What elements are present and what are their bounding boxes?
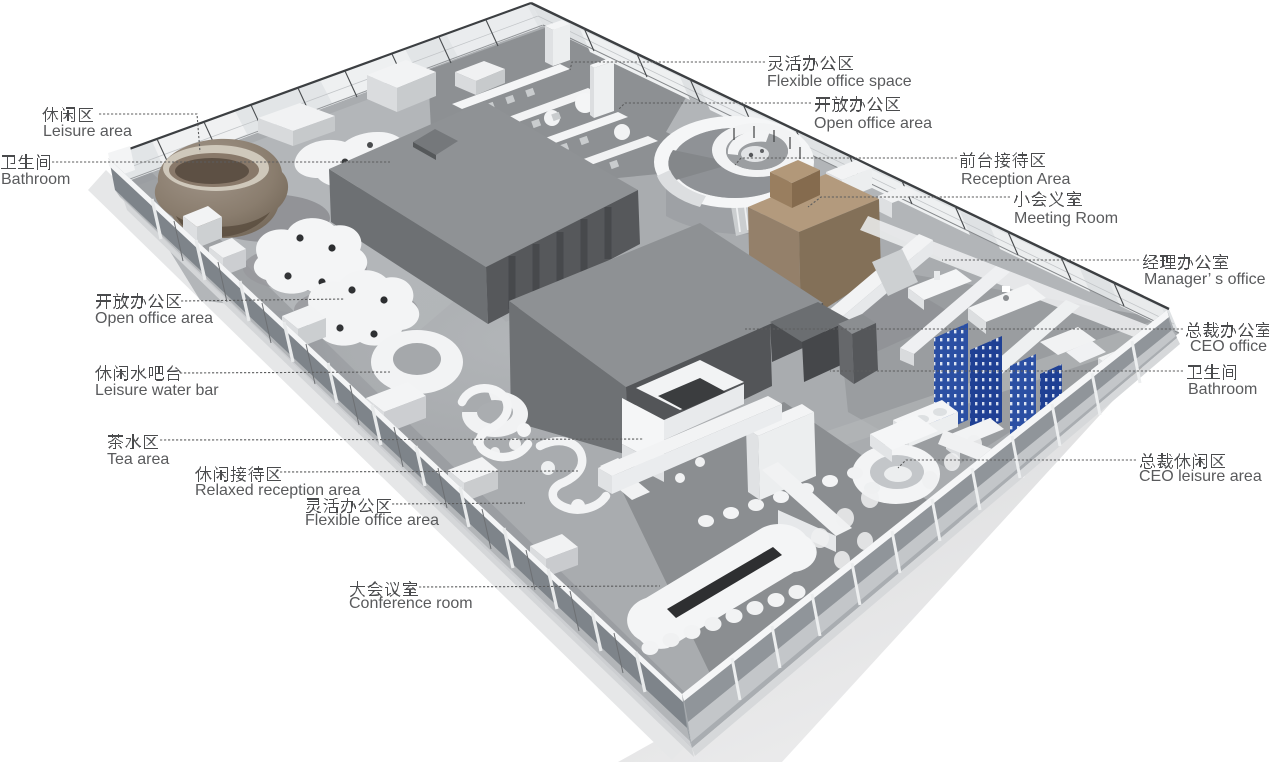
svg-text:Manager’ s office: Manager’ s office xyxy=(1144,271,1266,288)
svg-text:Meeting Room: Meeting Room xyxy=(1014,210,1118,227)
svg-text:Bathroom: Bathroom xyxy=(1,171,70,188)
svg-text:CEO leisure area: CEO leisure area xyxy=(1139,468,1262,485)
svg-text:Reception Area: Reception Area xyxy=(961,171,1071,188)
svg-text:Flexible office area: Flexible office area xyxy=(305,512,439,529)
svg-text:Relaxed reception area: Relaxed reception area xyxy=(195,482,361,499)
svg-text:Conference room: Conference room xyxy=(349,595,473,612)
svg-text:Leisure area: Leisure area xyxy=(43,123,132,140)
svg-text:Bathroom: Bathroom xyxy=(1188,381,1257,398)
svg-text:Open office area: Open office area xyxy=(95,310,213,327)
svg-text:Flexible office space: Flexible office space xyxy=(767,73,912,90)
svg-text:Open office area: Open office area xyxy=(814,115,932,132)
svg-text:CEO office: CEO office xyxy=(1190,338,1267,355)
svg-text:Leisure water bar: Leisure water bar xyxy=(95,382,219,399)
svg-text:Tea area: Tea area xyxy=(107,451,169,468)
